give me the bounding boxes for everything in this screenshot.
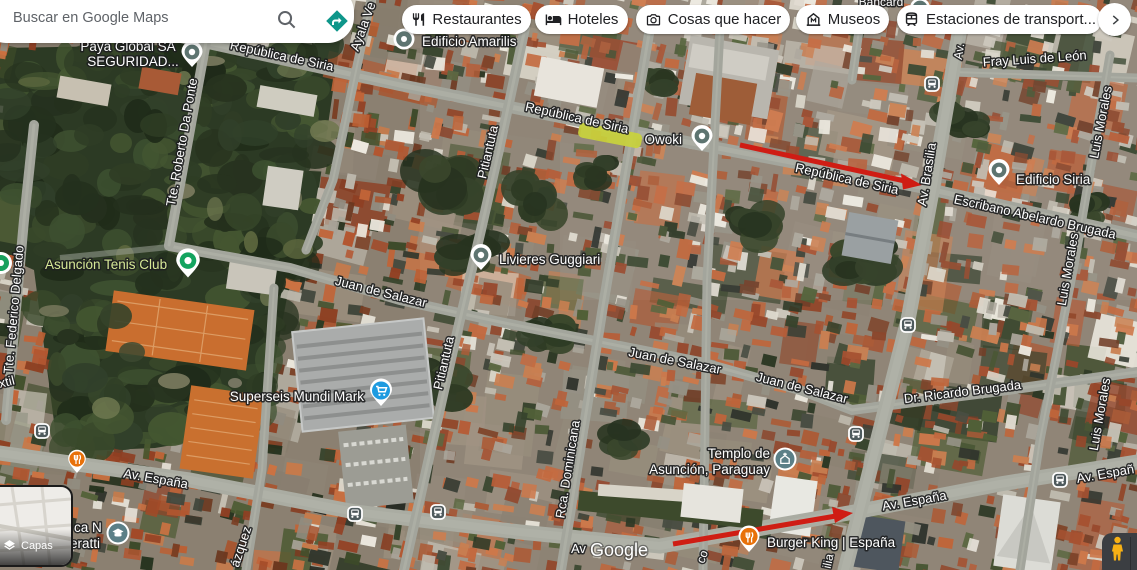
svg-text:Edificio Amarilis: Edificio Amarilis — [422, 34, 517, 49]
svg-text:eratti: eratti — [70, 536, 100, 551]
svg-text:Google: Google — [590, 540, 648, 560]
svg-text:Asunción, Paraguay: Asunción, Paraguay — [649, 462, 770, 477]
svg-text:Superseis Mundi Mark: Superseis Mundi Mark — [230, 389, 365, 404]
svg-text:ca N: ca N — [74, 520, 102, 535]
svg-text:Av: Av — [571, 541, 586, 556]
svg-text:Edificio Siria: Edificio Siria — [1016, 172, 1091, 187]
svg-text:SEGURIDAD...: SEGURIDAD... — [87, 54, 179, 69]
svg-text:Burger King | España: Burger King | España — [767, 535, 896, 550]
svg-text:Livieres Guggiari: Livieres Guggiari — [499, 252, 600, 267]
svg-text:Owoki: Owoki — [644, 132, 682, 147]
svg-text:Templo de: Templo de — [708, 446, 770, 461]
svg-text:Asunción Tenis Club: Asunción Tenis Club — [45, 257, 167, 272]
svg-text:Av.: Av. — [951, 42, 967, 60]
